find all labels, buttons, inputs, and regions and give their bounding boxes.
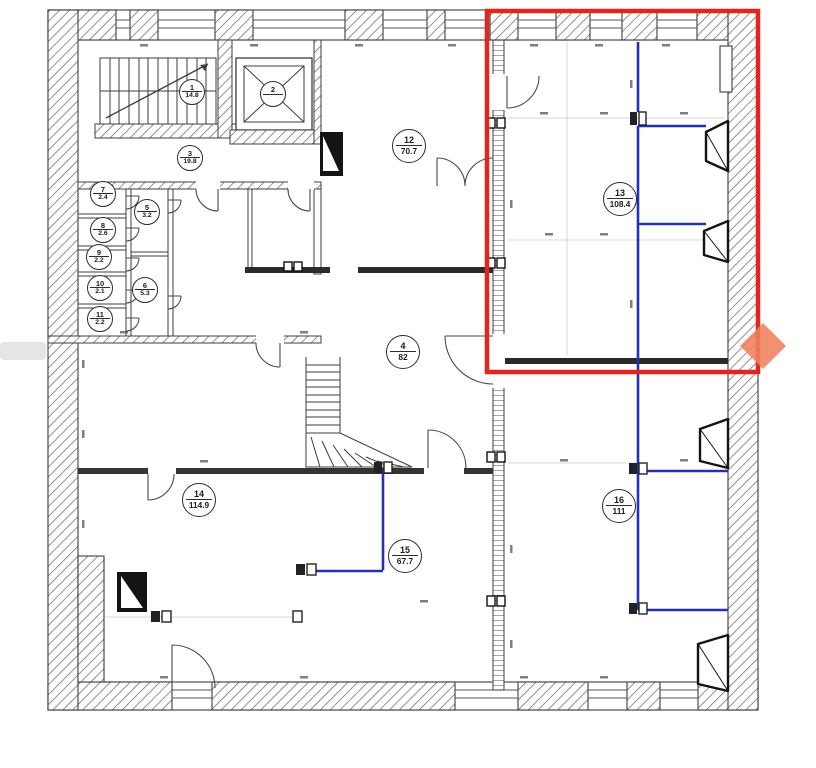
floor-plan-drawing [0,0,816,768]
floor-plan-screenshot: 114.8 2 319.8 482 53.2 65.3 72.4 82.6 92… [0,0,816,768]
room-tag-16: 16111 [602,489,636,523]
room-tag-15: 1567.7 [388,539,422,573]
room-tag-1: 114.8 [179,79,205,105]
room-tag-3: 319.8 [177,145,203,171]
room-tag-12: 1270.7 [392,129,426,163]
room-tag-10: 102.1 [87,275,113,301]
room-tag-13: 13108.4 [603,182,637,216]
room-tag-14: 14114.9 [182,483,216,517]
room-tag-6: 65.3 [132,277,158,303]
room-tag-8: 82.6 [90,217,116,243]
room-tag-7: 72.4 [90,181,116,207]
room-tag-11: 112.2 [87,306,113,332]
room-tag-9: 92.2 [86,244,112,270]
room-tag-5: 53.2 [134,199,160,225]
room-tag-2: 2 [260,81,286,107]
room-tag-4: 482 [386,335,420,369]
